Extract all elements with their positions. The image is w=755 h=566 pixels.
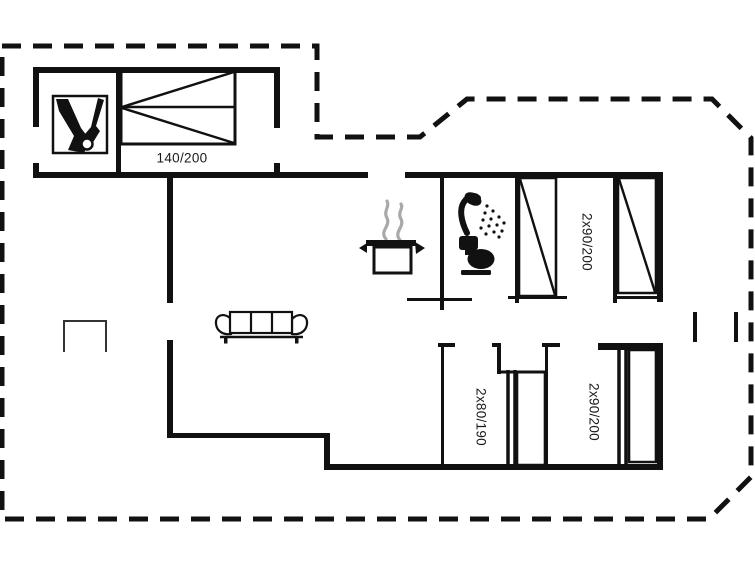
shower-spray xyxy=(479,204,505,238)
wall-bedroom-divider-bottom-stub xyxy=(542,343,560,347)
toilet-icon xyxy=(459,236,495,275)
wall-south-left xyxy=(167,433,330,438)
wall-south-main xyxy=(324,464,663,470)
label-double-bed-size: 140/200 xyxy=(157,151,208,166)
wall-north-long xyxy=(33,172,368,178)
bunk-bed-symbol-bottom-right xyxy=(619,350,656,466)
single-bed-symbol-top-right xyxy=(618,178,656,293)
floor-plan: 140/200 2x90/200 2x80/190 2x90/200 xyxy=(0,0,755,566)
wall-topleft-right-upper xyxy=(274,67,280,128)
wall-bedroom-bl-west xyxy=(441,345,444,468)
cooking-pot-icon xyxy=(359,240,425,273)
wall-west-upper xyxy=(167,177,173,303)
terrace-marker xyxy=(64,321,106,352)
wall-east-lower xyxy=(657,343,663,470)
label-bedroom-bottom-right-size: 2x90/200 xyxy=(587,383,602,441)
wall-bedroom-bl-top-stub xyxy=(438,343,455,347)
pot-handle-right xyxy=(415,242,425,254)
single-bed-symbol-top-left xyxy=(519,178,556,296)
double-bed-symbol xyxy=(121,71,235,144)
bunk-bed-symbol-bottom-left xyxy=(499,370,545,467)
plot-boundary-dashed xyxy=(2,46,751,519)
sofa-arm-right xyxy=(292,315,307,334)
wall-bath-south xyxy=(407,298,472,301)
wall-bedroom-divider-top xyxy=(613,177,617,303)
sofa-icon xyxy=(216,312,307,344)
floor-plan-drawing xyxy=(0,0,755,566)
exterior-step-mark-2 xyxy=(734,312,738,342)
sauna-icon xyxy=(53,96,107,153)
pot-handle-left xyxy=(359,243,367,253)
wall-east-upper xyxy=(657,172,663,302)
wall-bath-west xyxy=(440,178,444,310)
exterior-step-mark-1 xyxy=(693,312,697,342)
wall-topleft-left-upper xyxy=(33,67,39,127)
sofa-arm-left xyxy=(216,315,231,334)
wall-west-lower xyxy=(167,340,173,436)
shower-icon xyxy=(461,189,505,238)
sauna-timer xyxy=(82,139,93,150)
wall-bedroom-top-south-b xyxy=(613,296,663,299)
wall-bedroom-bl-notch-v xyxy=(497,343,501,374)
label-bedroom-top-size: 2x90/200 xyxy=(580,213,595,271)
steam-icon xyxy=(384,201,402,240)
label-bedroom-bottom-left-size: 2x80/190 xyxy=(474,388,489,446)
